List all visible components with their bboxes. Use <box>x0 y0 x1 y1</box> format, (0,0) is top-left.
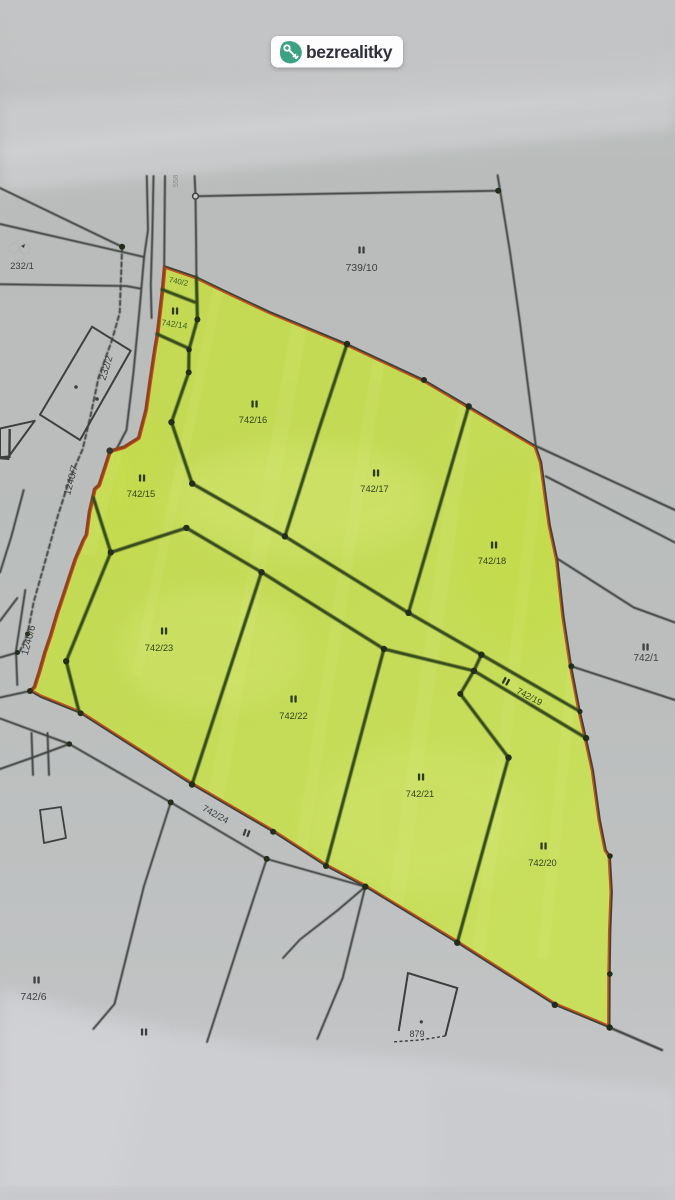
svg-text:232/1: 232/1 <box>10 261 34 272</box>
svg-text:742/6: 742/6 <box>20 991 46 1003</box>
svg-text:742/21: 742/21 <box>406 789 434 799</box>
svg-text:742/22: 742/22 <box>279 711 307 721</box>
svg-text:742/1: 742/1 <box>633 653 658 664</box>
svg-text:879: 879 <box>409 1029 424 1039</box>
svg-text:742/23: 742/23 <box>145 643 173 653</box>
svg-text:742/15: 742/15 <box>127 489 155 499</box>
svg-text:739/10: 739/10 <box>345 262 377 274</box>
svg-text:742/17: 742/17 <box>360 484 388 494</box>
svg-text:bezrealitky: bezrealitky <box>306 42 393 62</box>
svg-text:558: 558 <box>171 175 180 188</box>
svg-text:742/18: 742/18 <box>478 556 506 566</box>
svg-text:742/20: 742/20 <box>528 858 556 868</box>
svg-text:742/16: 742/16 <box>239 415 267 425</box>
